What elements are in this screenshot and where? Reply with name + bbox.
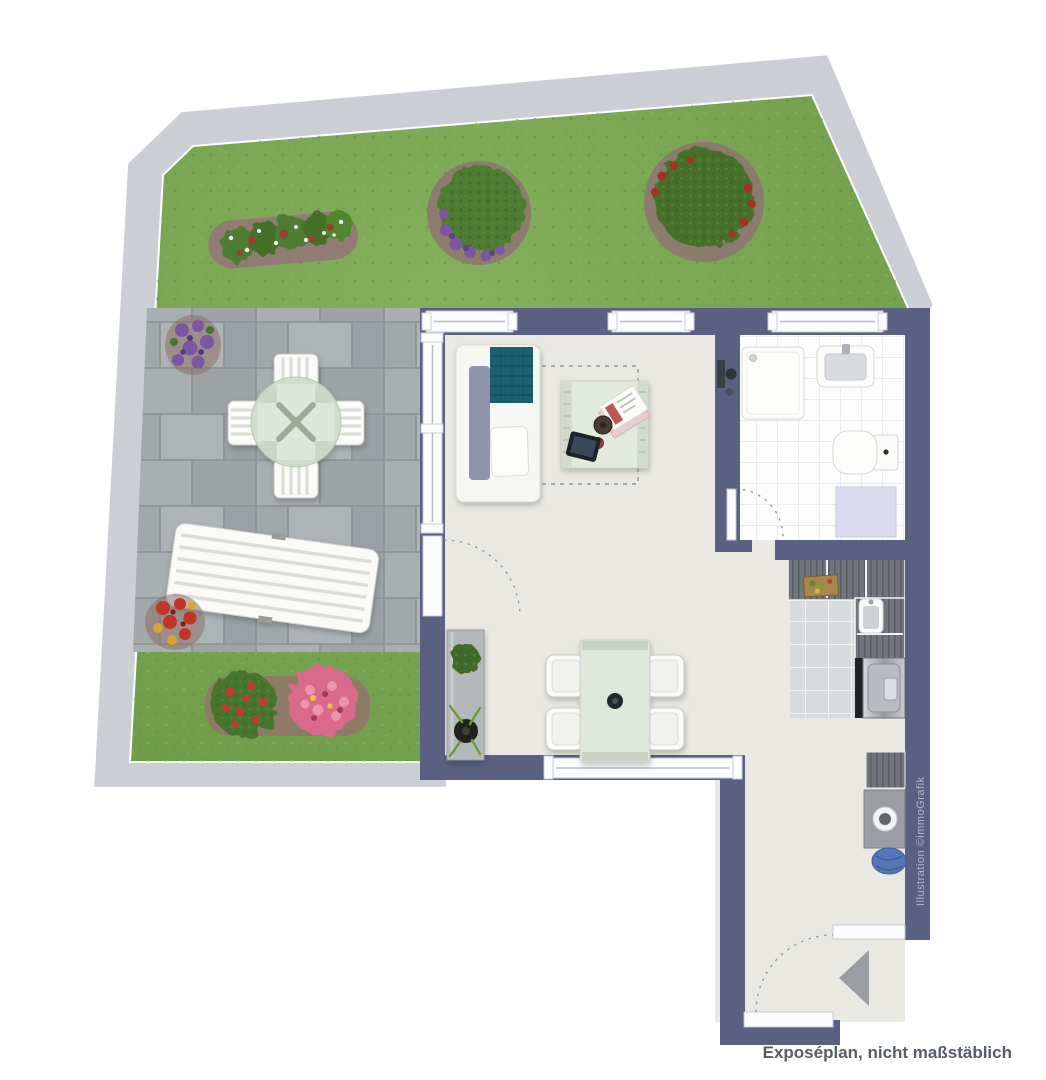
window-top-2 [608, 311, 694, 332]
flowers-red-yellow-corner [145, 594, 205, 650]
sofa-throw-blanket [490, 347, 533, 403]
bath-mat [836, 487, 896, 537]
coffee-table [561, 381, 652, 468]
sofa-backrest [469, 366, 490, 480]
window-top-1 [422, 311, 517, 332]
kitchen-floor-tiles [790, 600, 856, 718]
terrace [133, 308, 447, 652]
dining-chair-left-bottom [546, 708, 584, 750]
stove-oven [855, 658, 905, 718]
bush-purple [427, 161, 531, 265]
apartment [420, 308, 930, 1045]
toilet [833, 431, 898, 474]
cutting-board [803, 575, 838, 597]
floor-plan-svg: Illustration ©immoGrafik Exposéplan, nic… [0, 0, 1046, 1080]
floor-plan-page: Illustration ©immoGrafik Exposéplan, nic… [0, 0, 1046, 1080]
sofa-pillow [490, 426, 529, 476]
watermark-text: Illustration ©immoGrafik [915, 776, 927, 906]
dining-chair-left-top [546, 655, 584, 697]
kitchen-sink [859, 599, 883, 633]
caption-text: Exposéplan, nicht maßstäblich [763, 1043, 1012, 1062]
window-bathroom [768, 311, 887, 332]
kitchen [788, 556, 905, 718]
washing-machine [864, 790, 905, 848]
hall-shelf [866, 752, 905, 788]
window-terrace-tall [421, 333, 443, 533]
sofa [456, 345, 540, 502]
bush-red [644, 142, 764, 262]
dining-chair-right-top [646, 655, 684, 697]
dining-chair-right-bottom [646, 708, 684, 750]
sideboard [447, 630, 484, 760]
flowers-purple-corner [165, 315, 221, 375]
laundry-basket [872, 848, 906, 874]
flower-bed-bottom [205, 666, 370, 737]
washbasin [817, 344, 874, 387]
